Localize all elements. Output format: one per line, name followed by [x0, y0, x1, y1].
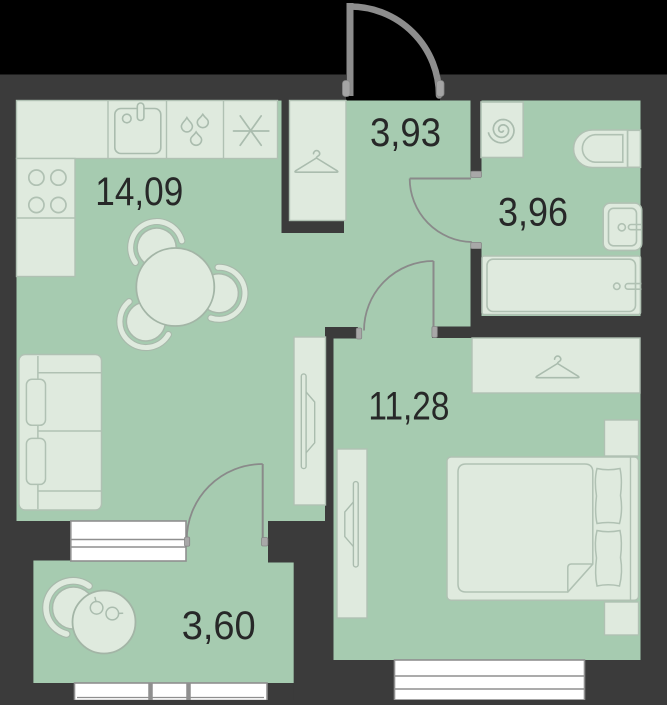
svg-text:3,93: 3,93	[370, 111, 441, 155]
svg-text:11,28: 11,28	[368, 385, 449, 429]
svg-text:14,09: 14,09	[95, 170, 183, 214]
svg-text:3,60: 3,60	[182, 604, 256, 648]
svg-text:3,96: 3,96	[498, 191, 568, 235]
